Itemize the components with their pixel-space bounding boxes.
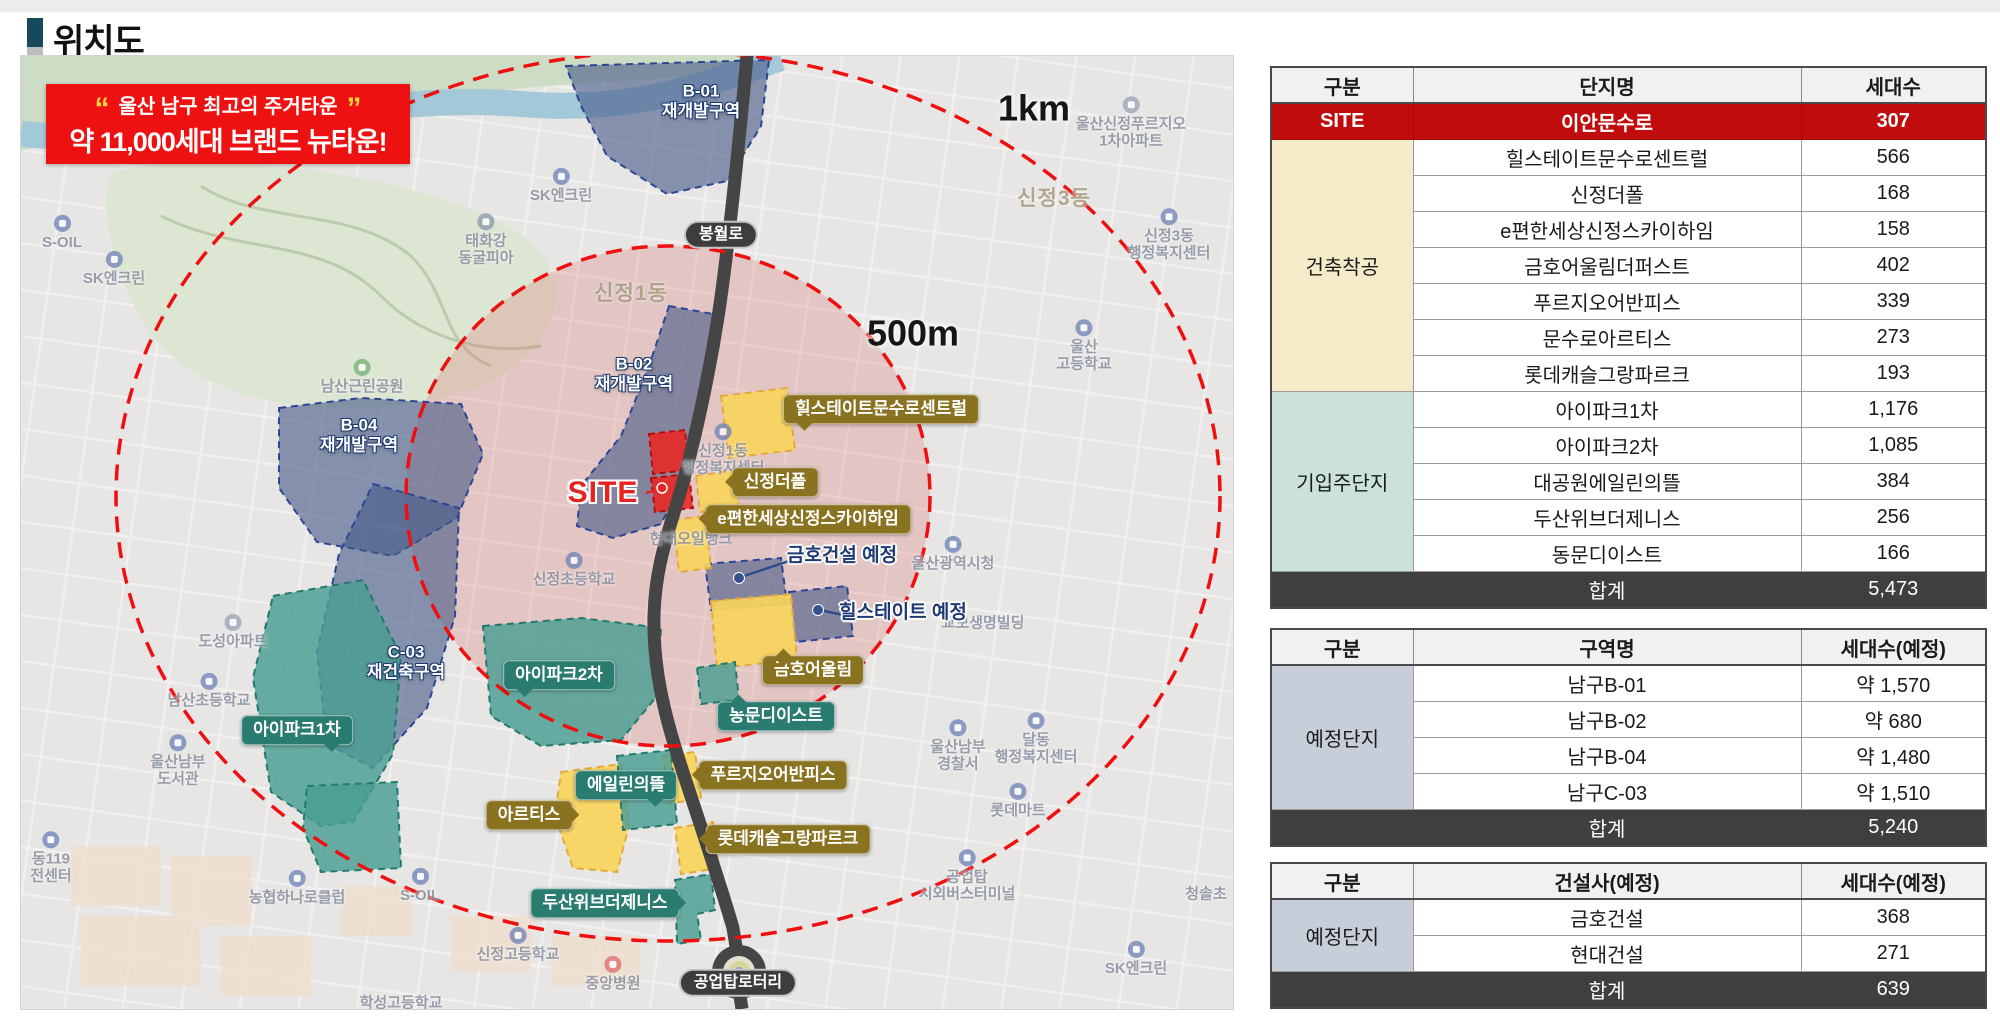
table-cell: 368 (1801, 899, 1986, 936)
callout-label: 아르티스 (486, 800, 573, 830)
table-row: 예정단지금호건설368 (1271, 899, 1986, 936)
table-cell: 1,085 (1801, 428, 1986, 464)
total-cell (1271, 572, 1413, 609)
group-cell: SITE (1271, 103, 1413, 140)
map-poi-label: 남산근린공원 (321, 359, 404, 395)
map-poi-label: S-OIL (42, 215, 82, 251)
group-cell: 예정단지 (1271, 899, 1413, 972)
map-poi-label: SK엔크린 (83, 251, 145, 287)
total-row: 합계5,473 (1271, 572, 1986, 609)
map-poi-label: 동119전센터 (30, 831, 71, 885)
table-row: 건축착공힐스테이트문수로센트럴566 (1271, 140, 1986, 176)
table-cell: 566 (1801, 140, 1986, 176)
shop-icon (1009, 783, 1026, 800)
callout-tail (668, 893, 686, 911)
zone-label-c-03: C-03재건축구역 (367, 642, 445, 681)
table-cell: 약 1,510 (1801, 774, 1986, 810)
table-cell: 193 (1801, 356, 1986, 392)
total-cell (1271, 972, 1413, 1009)
road-name-pill: 봉월로 (684, 221, 758, 249)
callout-label: 푸르지오어반피스 (698, 760, 847, 790)
callout-label: 힐스테이트문수로센트럴 (783, 394, 979, 424)
table-cell: 166 (1801, 536, 1986, 572)
total-cell: 639 (1801, 972, 1986, 1009)
complex-table: 구분단지명세대수SITE이안문수로307건축착공힐스테이트문수로센트럴566신정… (1270, 66, 1987, 609)
table-header-cell: 구분 (1271, 67, 1413, 103)
callout-tail (561, 805, 579, 823)
gov-icon (1028, 712, 1045, 729)
map-poi-label: 신정초등학교 (533, 552, 616, 588)
group-cell: 건축착공 (1271, 140, 1413, 392)
map-poi-label: 울산신정푸르지오1차아파트 (1076, 96, 1186, 150)
gas-icon (54, 215, 71, 232)
hospital-icon (604, 956, 621, 973)
table-cell: 약 1,480 (1801, 738, 1986, 774)
apt-icon (224, 614, 241, 631)
planned-zone-table: 구분구역명세대수(예정)예정단지남구B-01약 1,570남구B-02약 680… (1270, 628, 1987, 847)
district-label: 신정1동 (594, 282, 668, 306)
bus-icon (958, 849, 975, 866)
table-cell: 아이파크1차 (1413, 392, 1801, 428)
callout-tail (322, 733, 340, 751)
map-poi-label: SK엔크린 (1105, 941, 1167, 977)
table-row: 기입주단지아이파크1차1,176 (1271, 392, 1986, 428)
map-poi-label: 태화강동굴피아 (458, 213, 513, 267)
table-cell: 약 680 (1801, 702, 1986, 738)
table-cell: 금호건설 (1413, 899, 1801, 936)
total-cell: 합계 (1413, 972, 1801, 1009)
total-cell: 5,240 (1801, 810, 1986, 847)
map-poi-label: S-OIL (400, 868, 440, 904)
table-row: 예정단지남구B-01약 1,570 (1271, 665, 1986, 702)
table-header-cell: 구역명 (1413, 629, 1801, 665)
table-cell: 현대건설 (1413, 936, 1801, 972)
total-row: 합계639 (1271, 972, 1986, 1009)
police-icon (949, 719, 966, 736)
table-cell: 아이파크2차 (1413, 428, 1801, 464)
group-cell: 예정단지 (1271, 665, 1413, 810)
table-cell: 273 (1801, 320, 1986, 356)
map-poi-label: 청솔초 (1185, 885, 1226, 902)
map-poi-label: 울산남부도서관 (150, 734, 205, 788)
table-cell: 158 (1801, 212, 1986, 248)
total-cell: 5,473 (1801, 572, 1986, 609)
planned-callout-label: 힐스테이트 예정 (839, 602, 967, 624)
map-poi-label: 울산남부경찰서 (930, 719, 985, 773)
road-name-pill: 공업탑로터리 (679, 969, 797, 997)
map-poi-label: 롯데마트 (990, 783, 1045, 819)
table-header-cell: 구분 (1271, 863, 1413, 899)
gov-icon (1161, 208, 1178, 225)
table-header-cell: 세대수(예정) (1801, 629, 1986, 665)
table-cell: 1,176 (1801, 392, 1986, 428)
callout-label: 신정더폴 (732, 467, 819, 497)
table-cell: 307 (1801, 103, 1986, 140)
gov-icon (169, 734, 186, 751)
school-icon (201, 673, 218, 690)
planned-builder-table: 구분건설사(예정)세대수(예정)예정단지금호건설368현대건설271합계639 (1270, 862, 1987, 1009)
table-cell: 256 (1801, 500, 1986, 536)
table-cell: e편한세상신정스카이하임 (1413, 212, 1801, 248)
site-label: SITE (568, 476, 639, 511)
district-label: 신정3동 (1017, 187, 1091, 211)
promo-banner: “ 울산 남구 최고의 주거타운 ” 약 11,000세대 브랜드 뉴타운! (46, 84, 410, 164)
poi-icon (477, 213, 494, 230)
table-header-cell: 구분 (1271, 629, 1413, 665)
table-header-cell: 세대수 (1801, 67, 1986, 103)
table-cell: 푸르지오어반피스 (1413, 284, 1801, 320)
apt-icon (1123, 96, 1140, 113)
table-cell: 약 1,570 (1801, 665, 1986, 702)
promo-banner-line2: 약 11,000세대 브랜드 뉴타운! (69, 120, 386, 159)
table-cell: 339 (1801, 284, 1986, 320)
quote-close-icon: ” (347, 102, 362, 116)
map-poi-label: 신정고등학교 (477, 927, 560, 963)
callout-tail (699, 509, 717, 527)
table-cell: 신정더폴 (1413, 176, 1801, 212)
callout-tail (729, 695, 747, 713)
table-cell: 대공원에일린의뜰 (1413, 464, 1801, 500)
callout-tail (774, 649, 792, 667)
table-cell: 168 (1801, 176, 1986, 212)
table-cell: 271 (1801, 936, 1986, 972)
table-cell: 384 (1801, 464, 1986, 500)
location-map: S-OILSK엔크린태화강동굴피아SK엔크린신정1동신정3동울산신정푸르지오1차… (20, 55, 1234, 1010)
table-cell: 힐스테이트문수로센트럴 (1413, 140, 1801, 176)
top-strip (0, 0, 2000, 12)
planned-callout-label: 금호건설 예정 (787, 545, 897, 567)
map-poi-label: SK엔크린 (530, 168, 592, 204)
table-row: SITE이안문수로307 (1271, 103, 1986, 140)
total-cell (1271, 810, 1413, 847)
map-poi-label: 농협하나로클럽 (249, 870, 346, 906)
map-poi-label: 도성아파트 (198, 614, 267, 650)
callout-label: 금호어울림 (762, 655, 864, 685)
callout-tail (699, 829, 717, 847)
gas-icon (106, 251, 123, 268)
callout-tail (515, 678, 533, 696)
map-poi-label: 울산광역시청 (912, 536, 995, 572)
callout-tail (795, 412, 813, 430)
group-cell: 기입주단지 (1271, 392, 1413, 572)
shop-icon (288, 870, 305, 887)
quote-open-icon: “ (94, 102, 109, 116)
table-cell: 문수로아르티스 (1413, 320, 1801, 356)
callout-label: 에일린의뜰 (575, 770, 677, 800)
school-icon (510, 927, 527, 944)
callout-tail (646, 788, 664, 806)
table-header-cell: 단지명 (1413, 67, 1801, 103)
zone-label-b-04: B-04재개발구역 (320, 415, 398, 454)
total-row: 합계5,240 (1271, 810, 1986, 847)
table-cell: 두산위브더제니스 (1413, 500, 1801, 536)
promo-slogan: 울산 남구 최고의 주거타운 (118, 90, 337, 119)
table-cell: 남구B-01 (1413, 665, 1801, 702)
total-cell: 합계 (1413, 572, 1801, 609)
scale-label: 500m (867, 312, 959, 353)
table-header-cell: 건설사(예정) (1413, 863, 1801, 899)
map-poi-label: 남산초등학교 (168, 673, 251, 709)
callout-label: 아이파크2차 (503, 660, 615, 690)
zone-label-b-01: B-01재개발구역 (662, 81, 740, 120)
table-cell: 동문디이스트 (1413, 536, 1801, 572)
table-cell: 이안문수로 (1413, 103, 1801, 140)
table-cell: 남구B-02 (1413, 702, 1801, 738)
callout-tail (692, 765, 710, 783)
map-poi-label: 울산고등학교 (1056, 319, 1111, 373)
total-cell: 합계 (1413, 810, 1801, 847)
callout-label: 동문디이스트 (717, 701, 835, 731)
zone-label-b-02: B-02재개발구역 (595, 354, 673, 393)
map-poi-label: 중앙병원 (585, 956, 640, 992)
promo-banner-line1: “ 울산 남구 최고의 주거타운 ” (94, 90, 361, 119)
table-cell: 롯데캐슬그랑파르크 (1413, 356, 1801, 392)
callout-label: 아이파크1차 (241, 715, 353, 745)
title-bullet-dark (27, 18, 43, 49)
map-label-layer: S-OILSK엔크린태화강동굴피아SK엔크린신정1동신정3동울산신정푸르지오1차… (21, 56, 1233, 1009)
callout-label: 두산위브더제니스 (530, 888, 679, 918)
map-poi-label: 달동행정복지센터 (995, 712, 1078, 766)
map-poi-label: 신정3동행정복지센터 (1128, 208, 1211, 262)
scale-label: 1km (998, 87, 1070, 128)
gas-icon (553, 168, 570, 185)
callout-label: e편한세상신정스카이하임 (705, 504, 911, 534)
gov-icon (945, 536, 962, 553)
gas-icon (1128, 941, 1145, 958)
callout-label: 롯데캐슬그랑파르크 (706, 824, 871, 854)
table-cell: 남구B-04 (1413, 738, 1801, 774)
map-poi-label: 학성고등학교 (360, 994, 443, 1010)
table-cell: 금호어울림더퍼스트 (1413, 248, 1801, 284)
gov-icon (715, 423, 732, 440)
gas-icon (412, 868, 429, 885)
park-icon (354, 359, 371, 376)
map-poi-label: 공업탑시외버스터미널 (919, 849, 1016, 903)
table-cell: 남구C-03 (1413, 774, 1801, 810)
table-header-cell: 세대수(예정) (1801, 863, 1986, 899)
fire-icon (43, 831, 60, 848)
table-cell: 402 (1801, 248, 1986, 284)
school-icon (1075, 319, 1092, 336)
school-icon (566, 552, 583, 569)
